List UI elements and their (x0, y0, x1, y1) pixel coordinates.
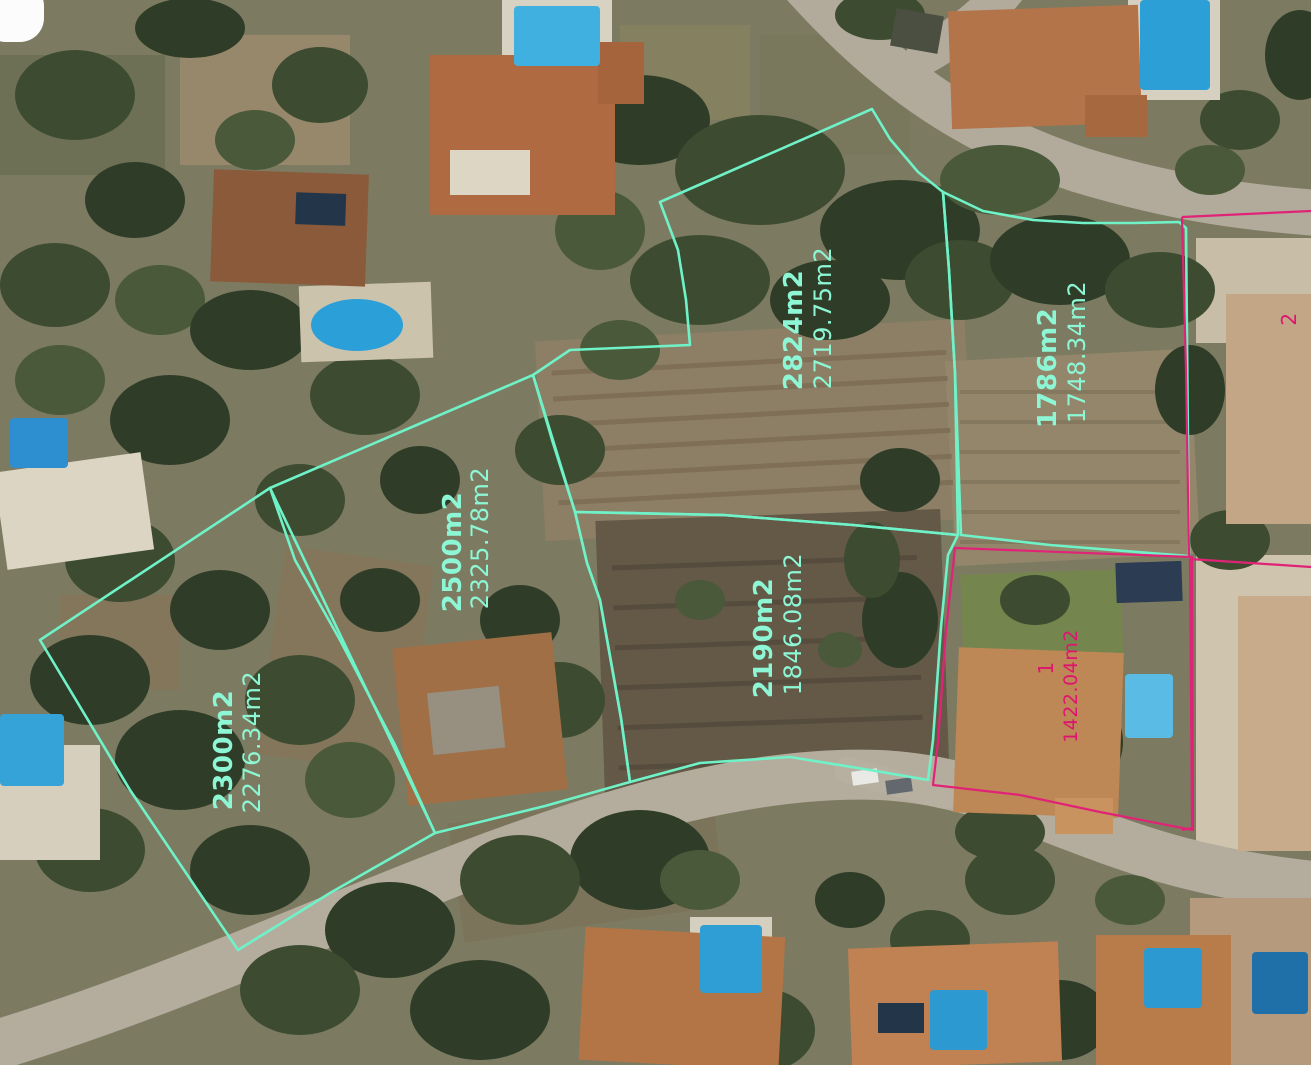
tree-canopy (1105, 252, 1215, 328)
tree-canopy (675, 580, 725, 620)
villa-roof (450, 150, 530, 195)
parcel-2190-area-label: 2190m2 (749, 578, 779, 699)
parcel-2190-area-label: 1846.08m2 (779, 553, 807, 695)
tree-canopy (818, 632, 862, 668)
tree-canopy (190, 825, 310, 915)
parcel-2500-area-label: 2325.78m2 (466, 467, 494, 609)
tree-canopy (30, 635, 150, 725)
swimming-pool (930, 990, 987, 1050)
parcel-plot-1-area-label: 1 (1034, 661, 1058, 674)
tree-canopy (15, 345, 105, 415)
tree-canopy (1095, 875, 1165, 925)
parcel-2824-area-label: 2719.75m2 (809, 247, 837, 389)
villa-roof (1226, 294, 1311, 524)
swimming-pool (0, 714, 64, 786)
villa-roof (1115, 561, 1182, 603)
villa-roof (598, 42, 644, 104)
swimming-pool (311, 299, 403, 351)
aerial-map-viewport[interactable]: 2824m22719.75m21786m21748.34m22500m22325… (0, 0, 1311, 1065)
parcel-2300-area-label: 2300m2 (209, 690, 239, 811)
tree-canopy (305, 742, 395, 818)
tree-canopy (844, 522, 900, 598)
swimming-pool (1144, 948, 1202, 1008)
villa-roof (0, 452, 154, 570)
parcel-plot-2-area-label: 2 (1277, 312, 1301, 325)
tree-canopy (630, 235, 770, 325)
tree-canopy (310, 355, 420, 435)
tree-canopy (170, 570, 270, 650)
tree-canopy (860, 448, 940, 512)
swimming-pool (1140, 0, 1210, 90)
swimming-pool (1125, 674, 1173, 738)
tree-canopy (1155, 345, 1225, 435)
tree-canopy (215, 110, 295, 170)
swimming-pool (10, 418, 68, 468)
tree-canopy (815, 872, 885, 928)
parcel-2824-area-label: 2824m2 (779, 270, 809, 391)
aerial-map-image: 2824m22719.75m21786m21748.34m22500m22325… (0, 0, 1311, 1065)
tree-canopy (15, 50, 135, 140)
tree-canopy (515, 415, 605, 485)
parcel-plot-1-area-label: 1422.04m2 (1060, 629, 1082, 743)
tree-canopy (272, 47, 368, 123)
villa-roof (878, 1003, 924, 1033)
tree-canopy (85, 162, 185, 238)
tree-canopy (240, 945, 360, 1035)
tree-canopy (135, 0, 245, 58)
villa-roof (1238, 596, 1311, 851)
parcel-2500-area-label: 2500m2 (438, 492, 468, 613)
villa-roof (427, 686, 505, 755)
tree-canopy (0, 243, 110, 327)
villa-roof (210, 169, 369, 286)
villa-roof (1085, 95, 1147, 137)
tree-canopy (940, 145, 1060, 215)
tree-canopy (340, 568, 420, 632)
tree-canopy (660, 850, 740, 910)
parcel-1786-area-label: 1748.34m2 (1063, 281, 1091, 423)
tree-canopy (110, 375, 230, 465)
swimming-pool (514, 6, 600, 66)
tree-canopy (410, 960, 550, 1060)
tree-canopy (1000, 575, 1070, 625)
swimming-pool (1252, 952, 1308, 1014)
villa-roof (295, 192, 346, 226)
tree-canopy (1175, 145, 1245, 195)
swimming-pool (700, 925, 762, 993)
tree-canopy (460, 835, 580, 925)
parcel-1786-area-label: 1786m2 (1033, 308, 1063, 429)
parcel-2300-area-label: 2276.34m2 (238, 671, 266, 813)
tree-canopy (190, 290, 310, 370)
